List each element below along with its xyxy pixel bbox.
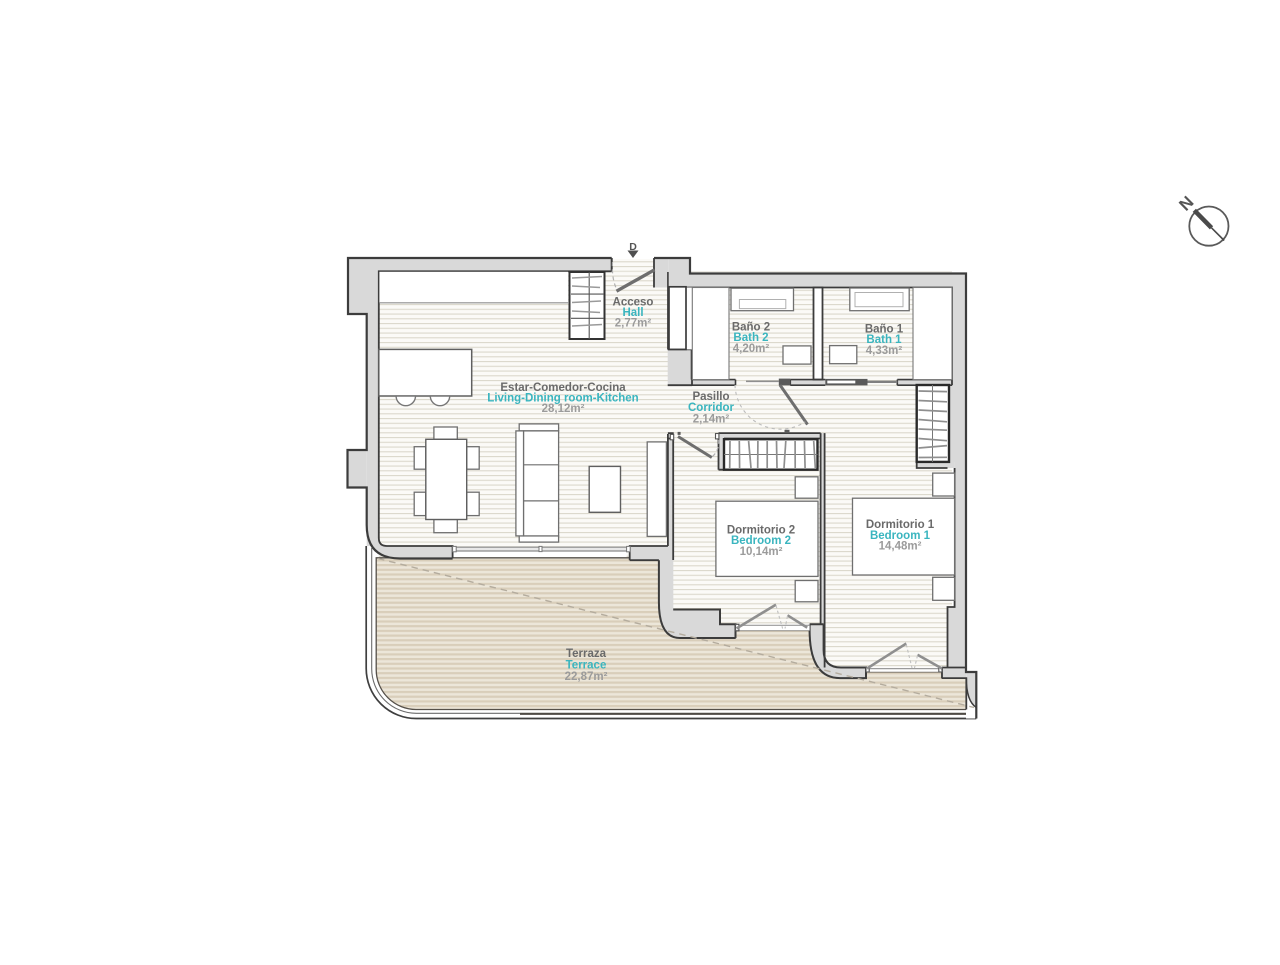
svg-text:2,14m²: 2,14m²	[693, 413, 730, 425]
svg-text:Terrace: Terrace	[566, 660, 607, 672]
svg-text:28,12m²: 28,12m²	[542, 403, 585, 415]
svg-text:14,48m²: 14,48m²	[879, 541, 922, 553]
svg-text:22,87m²: 22,87m²	[565, 671, 608, 683]
svg-text:Terraza: Terraza	[566, 648, 607, 660]
svg-text:4,20m²: 4,20m²	[733, 343, 770, 355]
svg-text:10,14m²: 10,14m²	[740, 546, 783, 558]
svg-text:Corridor: Corridor	[688, 402, 735, 414]
svg-text:2,77m²: 2,77m²	[615, 318, 652, 330]
svg-text:4,33m²: 4,33m²	[866, 345, 903, 357]
